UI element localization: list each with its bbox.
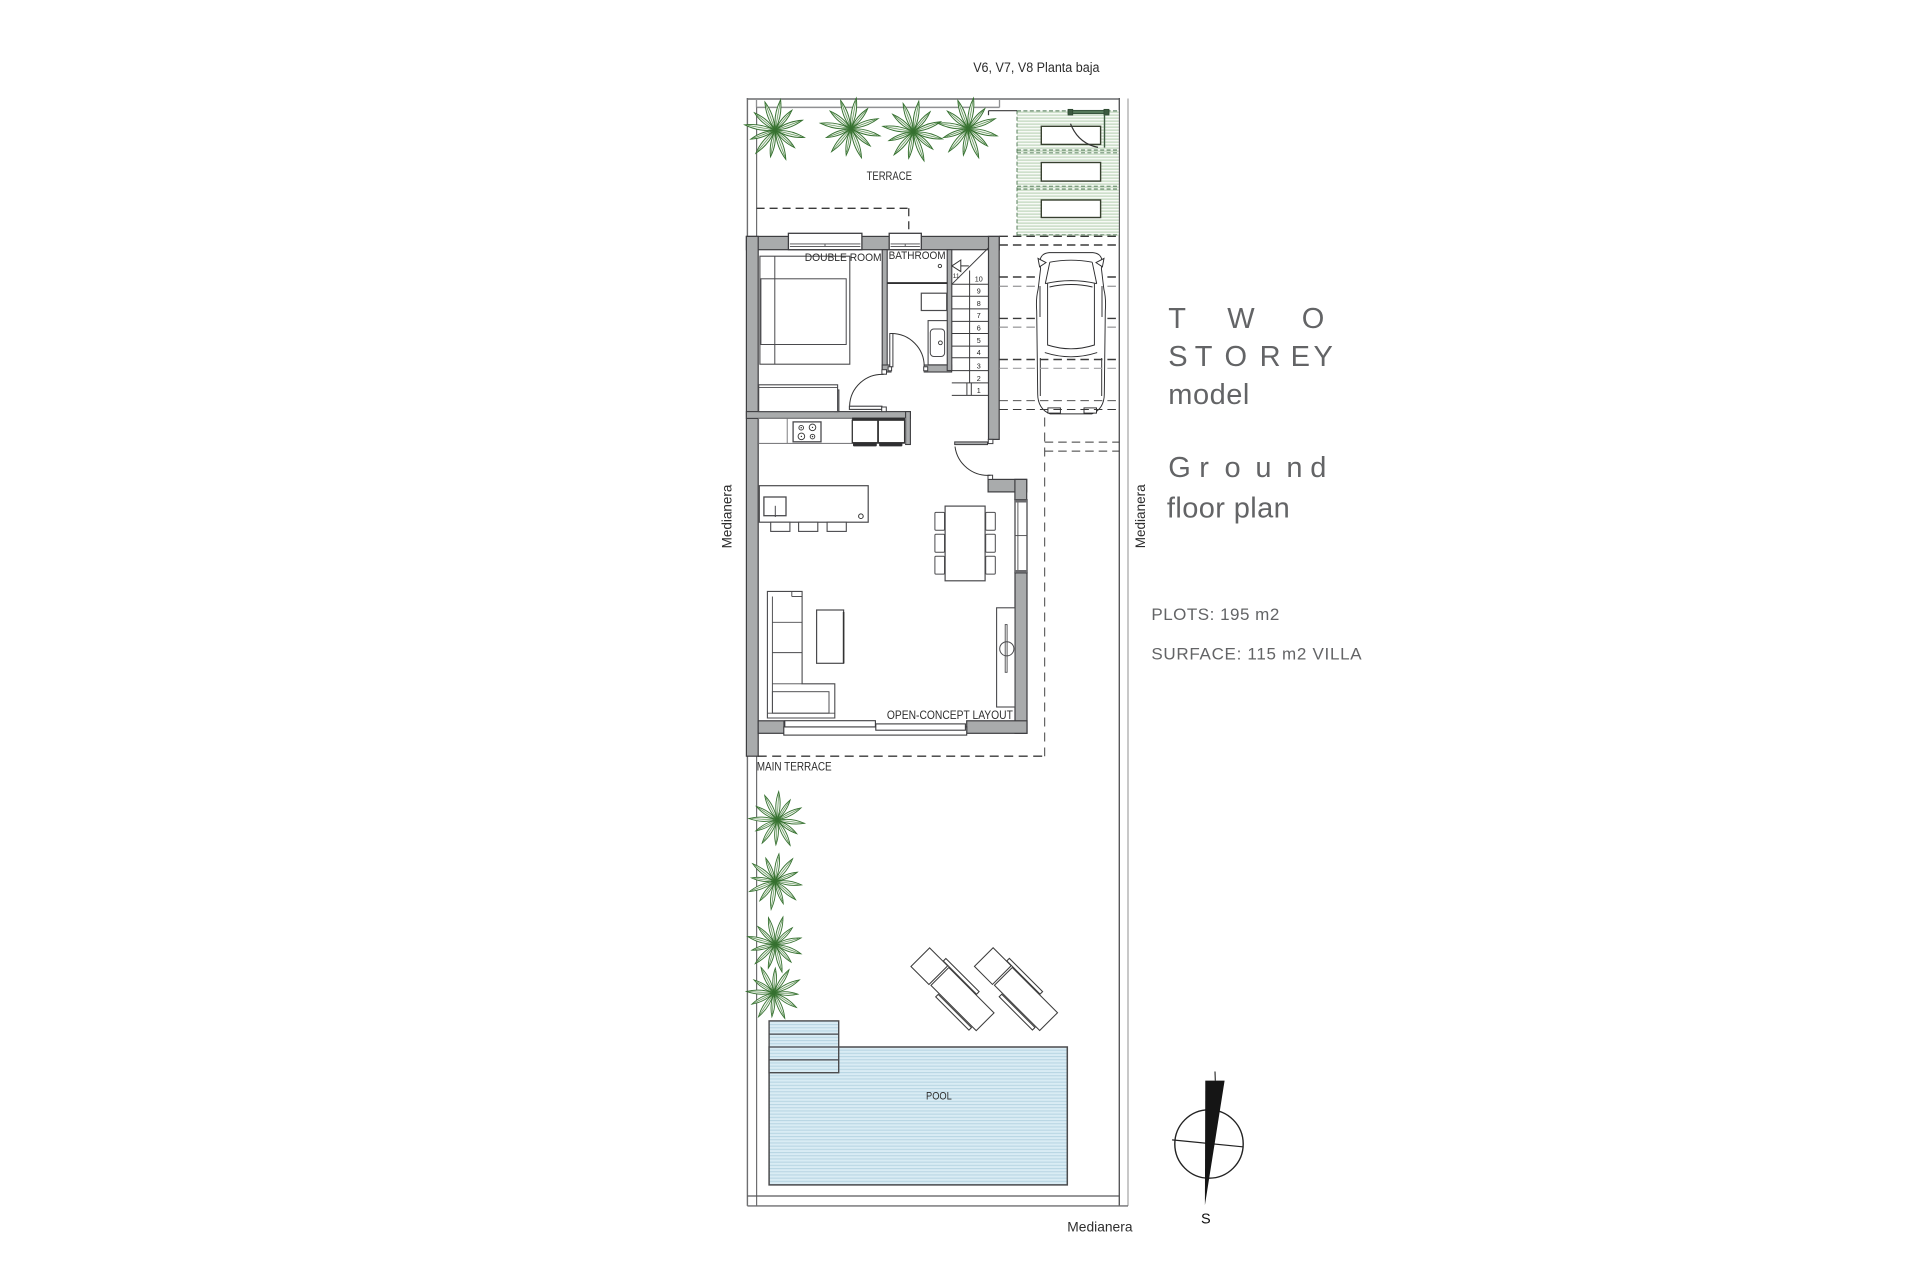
svg-text:Ground: Ground <box>1168 452 1326 484</box>
svg-text:7: 7 <box>977 311 981 320</box>
svg-text:MAIN TERRACE: MAIN TERRACE <box>757 762 832 774</box>
svg-text:11: 11 <box>953 273 960 280</box>
svg-text:Medianera: Medianera <box>1133 484 1148 548</box>
svg-text:POOL: POOL <box>926 1090 952 1102</box>
svg-text:V6, V7, V8 Planta baja: V6, V7, V8 Planta baja <box>973 60 1100 75</box>
svg-text:PLOTS: 195 m2: PLOTS: 195 m2 <box>1151 605 1279 624</box>
svg-text:floor plan: floor plan <box>1167 493 1290 525</box>
svg-text:model: model <box>1168 379 1250 411</box>
svg-text:TWO: TWO <box>1168 303 1324 335</box>
svg-text:5: 5 <box>977 336 981 345</box>
svg-text:S: S <box>1201 1212 1211 1228</box>
svg-text:BATHROOM: BATHROOM <box>889 250 946 262</box>
svg-text:2: 2 <box>977 374 981 383</box>
svg-text:Medianera: Medianera <box>1067 1220 1133 1235</box>
svg-text:TERRACE: TERRACE <box>867 169 912 183</box>
svg-text:OPEN-CONCEPT LAYOUT: OPEN-CONCEPT LAYOUT <box>887 710 1013 722</box>
svg-text:6: 6 <box>977 324 981 333</box>
svg-text:DOUBLE ROOM: DOUBLE ROOM <box>805 252 882 264</box>
svg-text:9: 9 <box>977 287 981 296</box>
svg-text:3: 3 <box>977 361 981 370</box>
svg-text:1: 1 <box>977 386 981 395</box>
svg-text:10: 10 <box>975 274 983 283</box>
svg-text:SURFACE: 115 m2 VILLA: SURFACE: 115 m2 VILLA <box>1151 645 1362 664</box>
svg-text:4: 4 <box>977 348 981 357</box>
svg-text:STOREY: STOREY <box>1168 341 1333 373</box>
svg-text:8: 8 <box>977 299 981 308</box>
svg-text:Medianera: Medianera <box>720 484 735 548</box>
